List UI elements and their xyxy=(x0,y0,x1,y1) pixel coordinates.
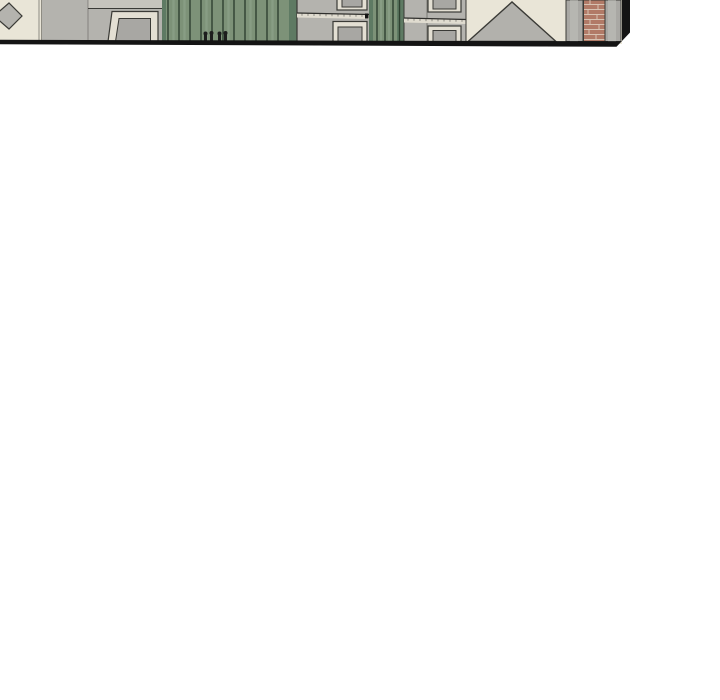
building2-window-top-glass xyxy=(433,0,456,9)
gate-handle-knob xyxy=(224,31,228,35)
building1-window-bottom-glass xyxy=(338,27,362,42)
gate2-edge-shadow-right xyxy=(397,0,404,42)
building2-window-bottom-glass xyxy=(433,31,456,42)
door-leaf xyxy=(116,19,151,42)
chimney-pillar-left-highlight xyxy=(570,0,578,42)
building1-ledge-endcap xyxy=(365,14,369,19)
gate-handle-stem xyxy=(210,35,213,42)
gate-handle-knob xyxy=(204,32,208,36)
gate-handle-knob xyxy=(210,31,214,35)
chimney-pillar-right-highlight xyxy=(608,0,616,42)
comic-panel-bottom-edge xyxy=(0,0,632,47)
gate-edge-shadow-left xyxy=(162,0,166,42)
gate-handle-stem xyxy=(218,35,221,41)
green-gate-middle xyxy=(369,0,404,42)
webtoon-page xyxy=(0,0,720,700)
gate-handle-stem xyxy=(204,35,207,41)
building1-window-top-glass xyxy=(342,0,362,7)
green-corrugated-gate xyxy=(162,0,297,42)
gate2-edge-shadow-left xyxy=(369,0,373,42)
building-face-1 xyxy=(297,0,369,42)
building-face-2 xyxy=(404,0,466,42)
panel-illustration xyxy=(0,0,632,47)
gate-edge-shadow-right xyxy=(289,0,297,42)
gray-wall-upper-light xyxy=(88,0,162,9)
gate-handle-stem xyxy=(224,35,227,42)
chimney-bricks xyxy=(584,0,606,42)
gate-handle-knob xyxy=(218,32,222,36)
brick-chimney xyxy=(566,0,621,42)
